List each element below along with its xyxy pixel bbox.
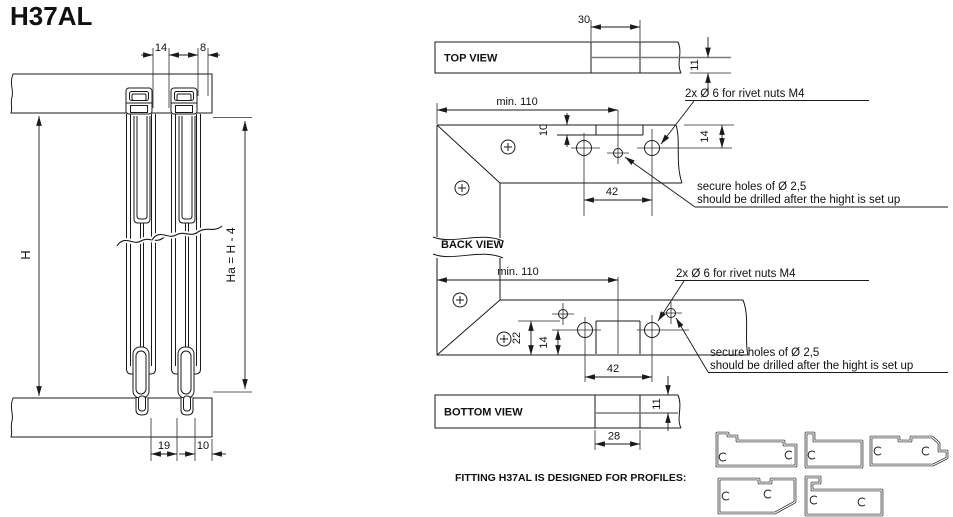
profile-thumb xyxy=(719,479,795,513)
profile-thumb xyxy=(806,433,862,467)
bottom-view-label: BOTTOM VIEW xyxy=(444,407,523,419)
drawing-sheet: H37AL 14 8 xyxy=(0,0,953,517)
back-view-label: BACK VIEW xyxy=(441,239,505,251)
secure-hole xyxy=(607,110,629,164)
dim-H: H xyxy=(18,250,33,259)
svg-text:2x Ø 6 for rivet nuts M4: 2x Ø 6 for rivet nuts M4 xyxy=(676,268,796,280)
dimension-11-top-view: 11 xyxy=(689,37,731,93)
profiles-note: FITTING H37AL IS DESIGNED FOR PROFILES: xyxy=(455,472,686,484)
dimension-bottom-gaps: 19 10 xyxy=(151,418,226,461)
dimension-height-H: H xyxy=(18,116,39,396)
dimension-42-upper: 42 xyxy=(584,186,652,200)
dimension-22: 22 xyxy=(511,321,531,355)
rivet-hole xyxy=(571,133,600,216)
secure-note-lower: secure holes of Ø 2,5 should be drilled … xyxy=(676,318,948,373)
dim-14-lower: 14 xyxy=(538,336,550,348)
dim-min110-lower: min. 110 xyxy=(497,266,538,278)
secure-note-upper: secure holes of Ø 2,5 should be drilled … xyxy=(625,157,948,207)
dim-42-upper: 42 xyxy=(606,186,618,198)
svg-text:secure holes of Ø 2,5: secure holes of Ø 2,5 xyxy=(710,347,819,359)
break-line xyxy=(433,254,503,258)
dimension-14-upper: 14 xyxy=(684,125,734,148)
dim-22: 22 xyxy=(511,332,523,344)
dim-14-upper: 14 xyxy=(699,130,711,142)
top-view-label: TOP VIEW xyxy=(444,53,498,65)
dim-11-top: 11 xyxy=(689,59,701,70)
back-view-upper-drawing: min. 110 10 42 14 2x Ø 6 for rivet nuts … xyxy=(433,88,948,251)
front-view-drawing: 14 8 H Ha = H - 4 19 10 xyxy=(11,42,252,461)
dim-14-top: 14 xyxy=(155,42,167,54)
dim-42-lower: 42 xyxy=(607,363,619,375)
dimension-11-bottom-view: 11 xyxy=(651,376,668,431)
dimension-min110-lower: min. 110 xyxy=(437,266,618,354)
corner-miter-line xyxy=(437,300,500,355)
dimension-14-lower: 14 xyxy=(538,330,558,355)
dim-19-bottom: 19 xyxy=(158,440,170,452)
dimension-30: 30 xyxy=(578,14,640,41)
rivet-hole xyxy=(552,317,601,382)
back-view-lower-drawing: min. 110 22 14 42 2x Ø 6 for rivet nuts … xyxy=(433,254,948,382)
svg-text:should be drilled after the hi: should be drilled after the hight is set… xyxy=(710,360,913,372)
dimension-42-lower: 42 xyxy=(585,363,652,377)
dim-10-notch: 10 xyxy=(538,124,550,136)
rivet-hole xyxy=(637,315,689,382)
dim-28: 28 xyxy=(608,431,620,443)
profile-thumb xyxy=(717,433,796,466)
secure-hole xyxy=(552,303,574,325)
corner-miter-line xyxy=(437,125,500,183)
break-edge xyxy=(678,395,681,428)
profile-thumb xyxy=(871,437,947,465)
dimension-10-notch: 10 xyxy=(538,113,567,147)
top-view-drawing: TOP VIEW 30 11 xyxy=(435,14,731,93)
page-title: H37AL xyxy=(10,1,92,31)
rivet-note-upper: 2x Ø 6 for rivet nuts M4 xyxy=(661,88,869,144)
profile-thumbnails xyxy=(717,433,947,515)
break-line xyxy=(117,226,222,246)
svg-text:secure holes of Ø 2,5: secure holes of Ø 2,5 xyxy=(697,181,806,193)
break-edge xyxy=(676,125,682,183)
dimension-min110-upper: min. 110 xyxy=(437,96,618,124)
technical-drawing-canvas: H37AL 14 8 xyxy=(0,0,953,517)
dim-Ha: Ha = H - 4 xyxy=(224,227,238,282)
dim-11-bottom: 11 xyxy=(651,398,663,409)
bottom-view-drawing: BOTTOM VIEW 11 28 xyxy=(435,376,681,450)
dim-10-bottom: 10 xyxy=(197,440,209,452)
svg-text:should be drilled after the hi: should be drilled after the hight is set… xyxy=(697,194,900,206)
dim-min110-upper: min. 110 xyxy=(496,96,537,108)
dimension-height-Ha: Ha = H - 4 xyxy=(213,118,252,393)
svg-text:2x Ø 6 for rivet nuts M4: 2x Ø 6 for rivet nuts M4 xyxy=(685,88,805,100)
rivet-note-lower: 2x Ø 6 for rivet nuts M4 xyxy=(658,268,869,321)
dim-30: 30 xyxy=(578,14,590,26)
dimension-28: 28 xyxy=(595,430,640,450)
dim-8-top: 8 xyxy=(200,42,206,54)
profile-thumb xyxy=(806,477,882,515)
